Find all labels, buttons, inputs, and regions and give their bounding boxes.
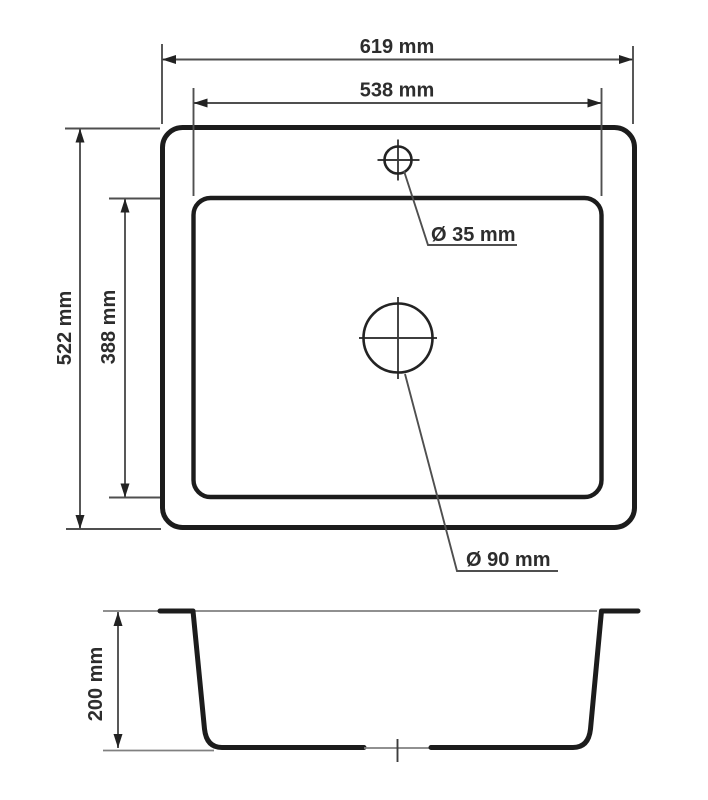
dim-outer-width-label: 619 mm [360,36,435,58]
dim-bowl-width-label: 538 mm [360,80,435,102]
arrowhead-bottom [76,515,85,529]
arrowhead-left [194,99,208,108]
dim-depth: 200 mm [85,612,123,748]
technical-drawing-canvas: 619 mm 538 mm 522 mm [0,0,708,800]
top-view: 619 mm 538 mm 522 mm [54,36,635,571]
bowl-section-right [431,611,638,748]
arrowhead-right [588,99,602,108]
dim-bowl-height: 388 mm [98,199,160,498]
drain-hole-label: Ø 90 mm [466,549,550,571]
arrowhead-top [76,129,85,143]
arrowhead-left [162,55,176,64]
tap-hole-callout: Ø 35 mm [404,171,517,246]
arrowhead-bottom [121,484,130,498]
drain-hole [359,297,437,379]
arrowhead-top [121,199,130,213]
tap-hole-label: Ø 35 mm [431,224,515,246]
arrowhead-top [114,612,123,626]
bowl-section-left [160,611,364,748]
drain-hole-callout: Ø 90 mm [405,374,558,571]
dim-outer-height-label: 522 mm [54,291,76,366]
arrowhead-bottom [114,734,123,748]
arrowhead-right [619,55,633,64]
sink-dimension-drawing: 619 mm 538 mm 522 mm [0,0,708,800]
section-view: 200 mm [85,611,638,762]
dim-depth-label: 200 mm [85,647,107,722]
tap-hole [378,140,420,181]
leader-line [405,374,558,571]
dim-bowl-height-label: 388 mm [98,290,120,365]
